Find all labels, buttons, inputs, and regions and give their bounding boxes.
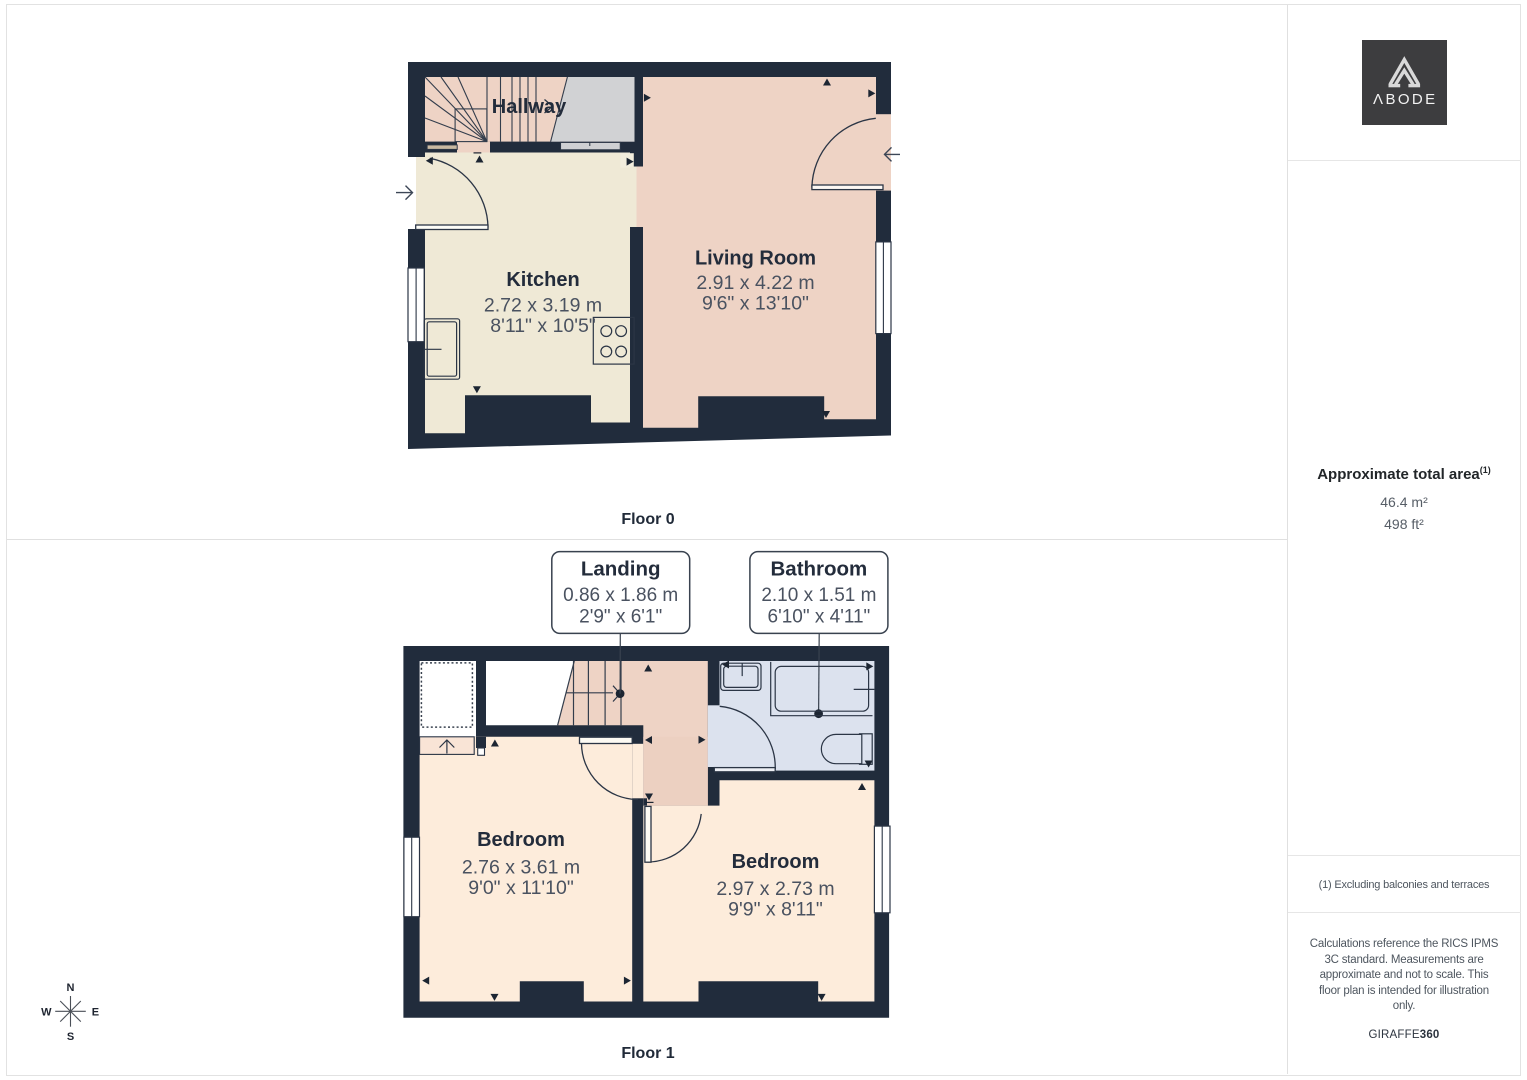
svg-text:Bedroom: Bedroom [732,851,820,873]
svg-text:2.10 x 1.51 m: 2.10 x 1.51 m [761,585,876,606]
svg-text:2.91 x 4.22 m: 2.91 x 4.22 m [696,272,814,294]
svg-text:Living Room: Living Room [695,248,816,270]
svg-text:Kitchen: Kitchen [506,269,579,291]
svg-text:E: E [92,1006,99,1018]
svg-text:Bedroom: Bedroom [477,829,565,851]
svg-text:6'10" x 4'11": 6'10" x 4'11" [768,607,871,628]
svg-text:9'9" x 8'11": 9'9" x 8'11" [728,899,823,921]
svg-text:2.76 x 3.61 m: 2.76 x 3.61 m [462,857,580,879]
svg-text:Bathroom: Bathroom [770,558,867,581]
svg-text:0.86 x 1.86 m: 0.86 x 1.86 m [563,585,678,606]
svg-text:N: N [67,982,75,994]
svg-text:2.97 x 2.73 m: 2.97 x 2.73 m [716,878,834,900]
svg-text:Landing: Landing [581,558,661,581]
svg-text:2.72 x 3.19 m: 2.72 x 3.19 m [484,295,602,317]
svg-text:2'9" x 6'1": 2'9" x 6'1" [579,607,662,628]
svg-text:Hallway: Hallway [492,96,567,118]
svg-text:W: W [41,1006,52,1018]
svg-text:9'0" x 11'10": 9'0" x 11'10" [468,877,574,899]
svg-text:S: S [67,1031,74,1043]
svg-text:ΛBODE: ΛBODE [1373,91,1438,108]
svg-text:8'11" x 10'5": 8'11" x 10'5" [490,315,596,337]
svg-text:9'6" x 13'10": 9'6" x 13'10" [702,293,809,315]
